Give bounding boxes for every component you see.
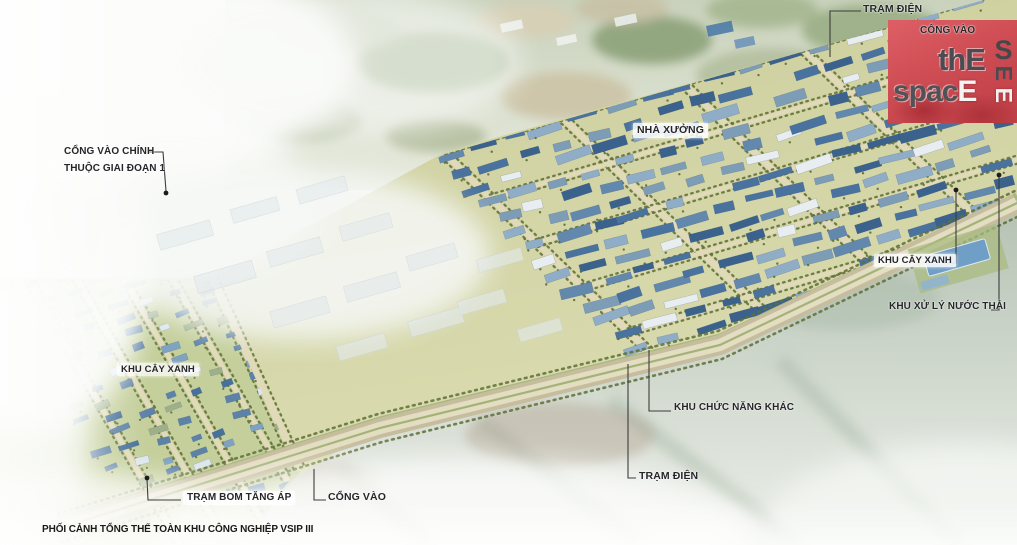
logo-letter-e2: E [993, 88, 1014, 103]
logo-letter-e1: E [993, 66, 1014, 81]
logo-vertical-letters: S E E [990, 38, 1017, 106]
logo-letter-s: S [994, 38, 1012, 62]
label-khu-cay-xanh-right: KHU CÂY XANH [874, 254, 956, 267]
label-cong-vao-chinh: CỔNG VÀO CHÍNH THUỘC GIAI ĐOẠN 1 [64, 143, 165, 177]
masterplan-scene: thE spacE S E E TRẠM ĐIỆN CỔNG VÀO CỔNG … [0, 0, 1017, 545]
logo-word-space-light: E [957, 75, 976, 108]
label-nha-xuong: NHÀ XƯỞNG [633, 123, 708, 138]
logo-word-the: thE [938, 42, 985, 78]
label-tram-dien-top: TRẠM ĐIỆN [863, 3, 922, 16]
label-khu-cay-xanh-left: KHU CÂY XANH [117, 363, 199, 376]
label-tram-bom-tang-ap: TRẠM BOM TĂNG ÁP [183, 491, 295, 505]
label-khu-xu-ly-nuoc-thai: KHU XỬ LÝ NƯỚC THẢI [889, 301, 1006, 313]
logo-word-space-dark: spac [893, 75, 957, 108]
label-cong-vao-chinh-line2: THUỘC GIAI ĐOẠN 1 [64, 160, 165, 177]
logo-word-space: spacE [893, 75, 976, 109]
label-khu-chuc-nang-khac: KHU CHỨC NĂNG KHÁC [674, 402, 794, 414]
label-cong-vao-chinh-line1: CỔNG VÀO CHÍNH [64, 143, 165, 160]
aerial-render [0, 0, 1017, 545]
label-cong-vao-bottom: CỔNG VÀO [328, 491, 386, 504]
image-caption: PHỐI CẢNH TỔNG THỂ TOÀN KHU CÔNG NGHIỆP … [42, 524, 313, 535]
left-vignette [0, 0, 150, 545]
label-cong-vao-top: CỔNG VÀO [920, 25, 975, 37]
bottom-vignette [0, 498, 1017, 545]
label-tram-dien-bottom: TRẠM ĐIỆN [639, 470, 698, 483]
